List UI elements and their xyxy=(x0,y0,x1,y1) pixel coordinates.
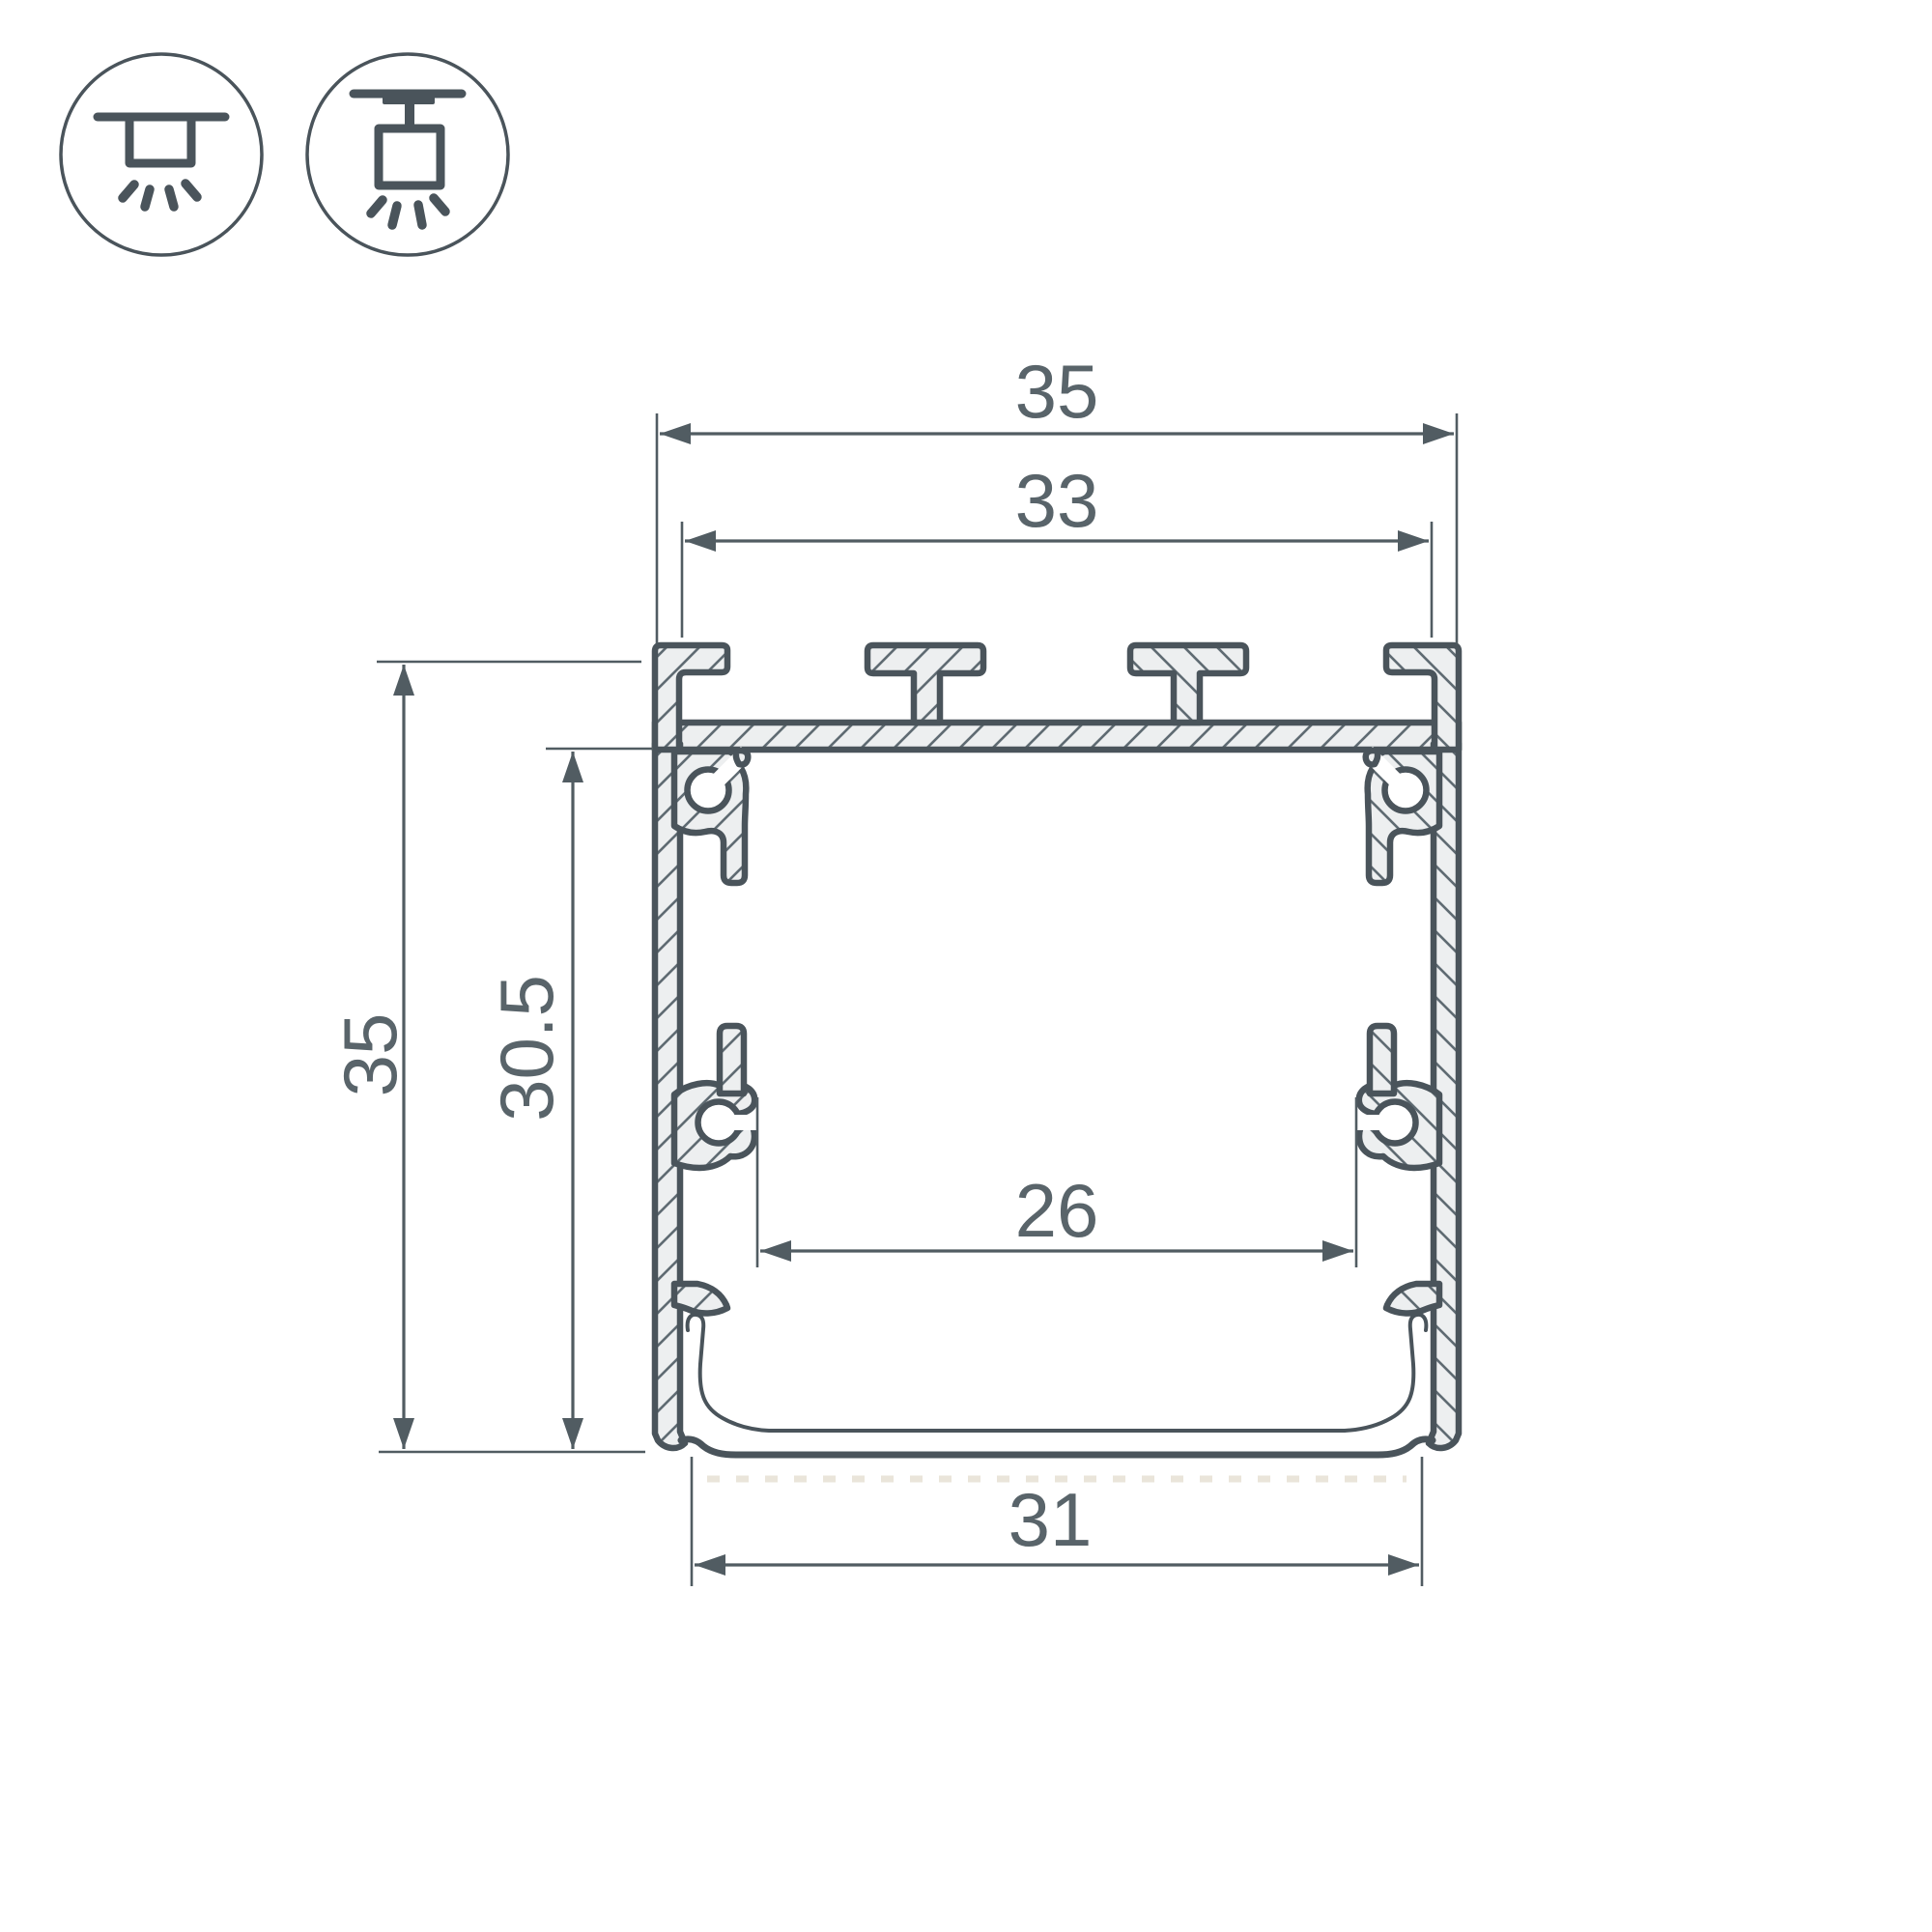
dimension-led-shelf-width: 26 xyxy=(757,1097,1356,1267)
technical-drawing-canvas: 35 33 35 30.5 xyxy=(0,0,1932,1932)
dimension-inner-width: 33 xyxy=(682,458,1432,638)
dimension-inner-height: 30.5 xyxy=(484,749,653,1449)
dimension-label-inner-height: 30.5 xyxy=(484,975,569,1122)
profile-left-half xyxy=(655,645,1063,1455)
profile-body xyxy=(655,645,1459,1479)
icon-light-rays xyxy=(371,198,445,225)
dimension-label-bottom-width: 31 xyxy=(1009,1477,1093,1562)
icon-light-rays xyxy=(123,184,197,207)
dimension-label-height: 35 xyxy=(327,1013,412,1097)
icon-lamp-box xyxy=(379,128,440,185)
profile-cross-section-drawing: 35 33 35 30.5 xyxy=(0,0,1932,1932)
mounting-icons xyxy=(61,54,508,255)
dimensions: 35 33 35 30.5 xyxy=(327,349,1457,1586)
dimension-label-inner-width: 33 xyxy=(1015,458,1099,543)
profile-right-half xyxy=(1051,645,1459,1455)
profile-top-plate xyxy=(655,723,1459,750)
dimension-label-top-width: 35 xyxy=(1015,349,1099,434)
recessed-ceiling-light-icon xyxy=(61,54,262,255)
surface-ceiling-light-icon xyxy=(307,54,508,255)
icon-lamp-box xyxy=(129,117,191,163)
dimension-label-led-shelf-width: 26 xyxy=(1015,1168,1099,1253)
